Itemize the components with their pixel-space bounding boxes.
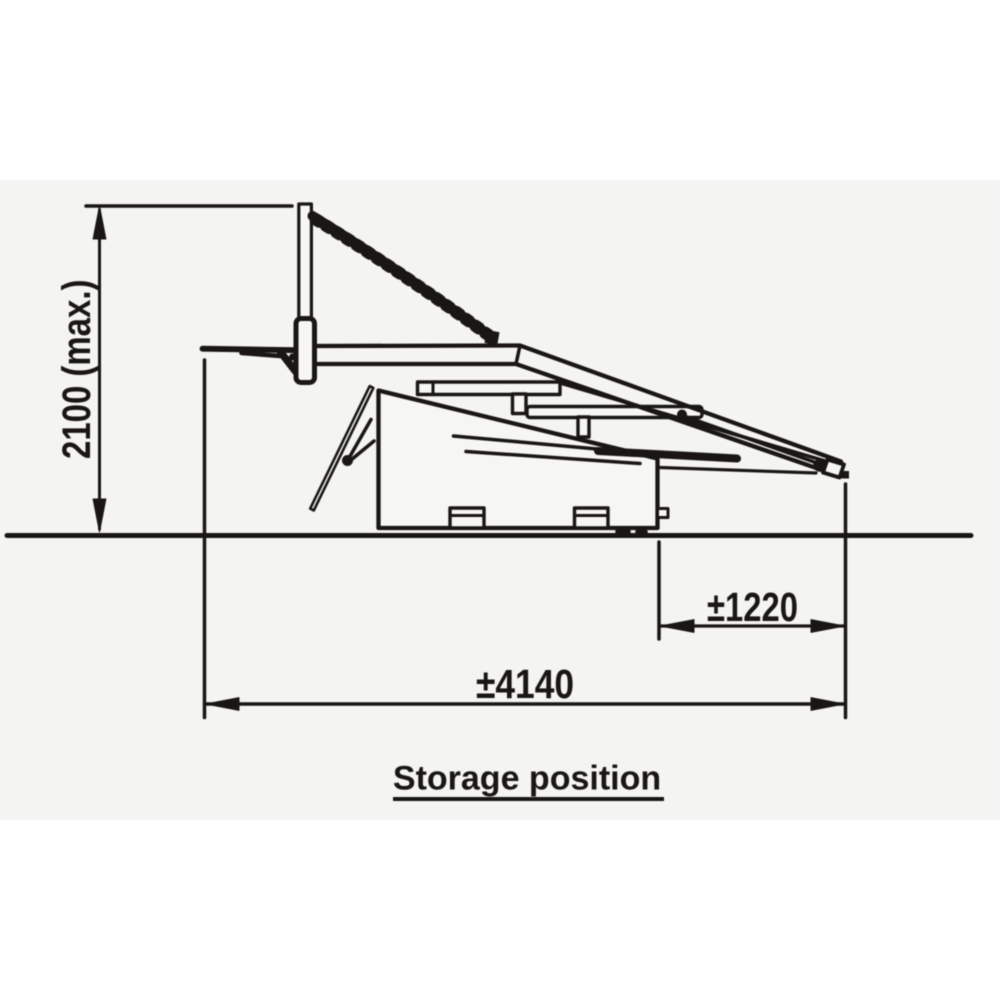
svg-text:2100 (max.): 2100 (max.) <box>54 280 99 459</box>
svg-text:Storage position: Storage position <box>393 760 661 798</box>
svg-text:±1220: ±1220 <box>707 583 798 629</box>
svg-text:±4140: ±4140 <box>476 662 574 708</box>
